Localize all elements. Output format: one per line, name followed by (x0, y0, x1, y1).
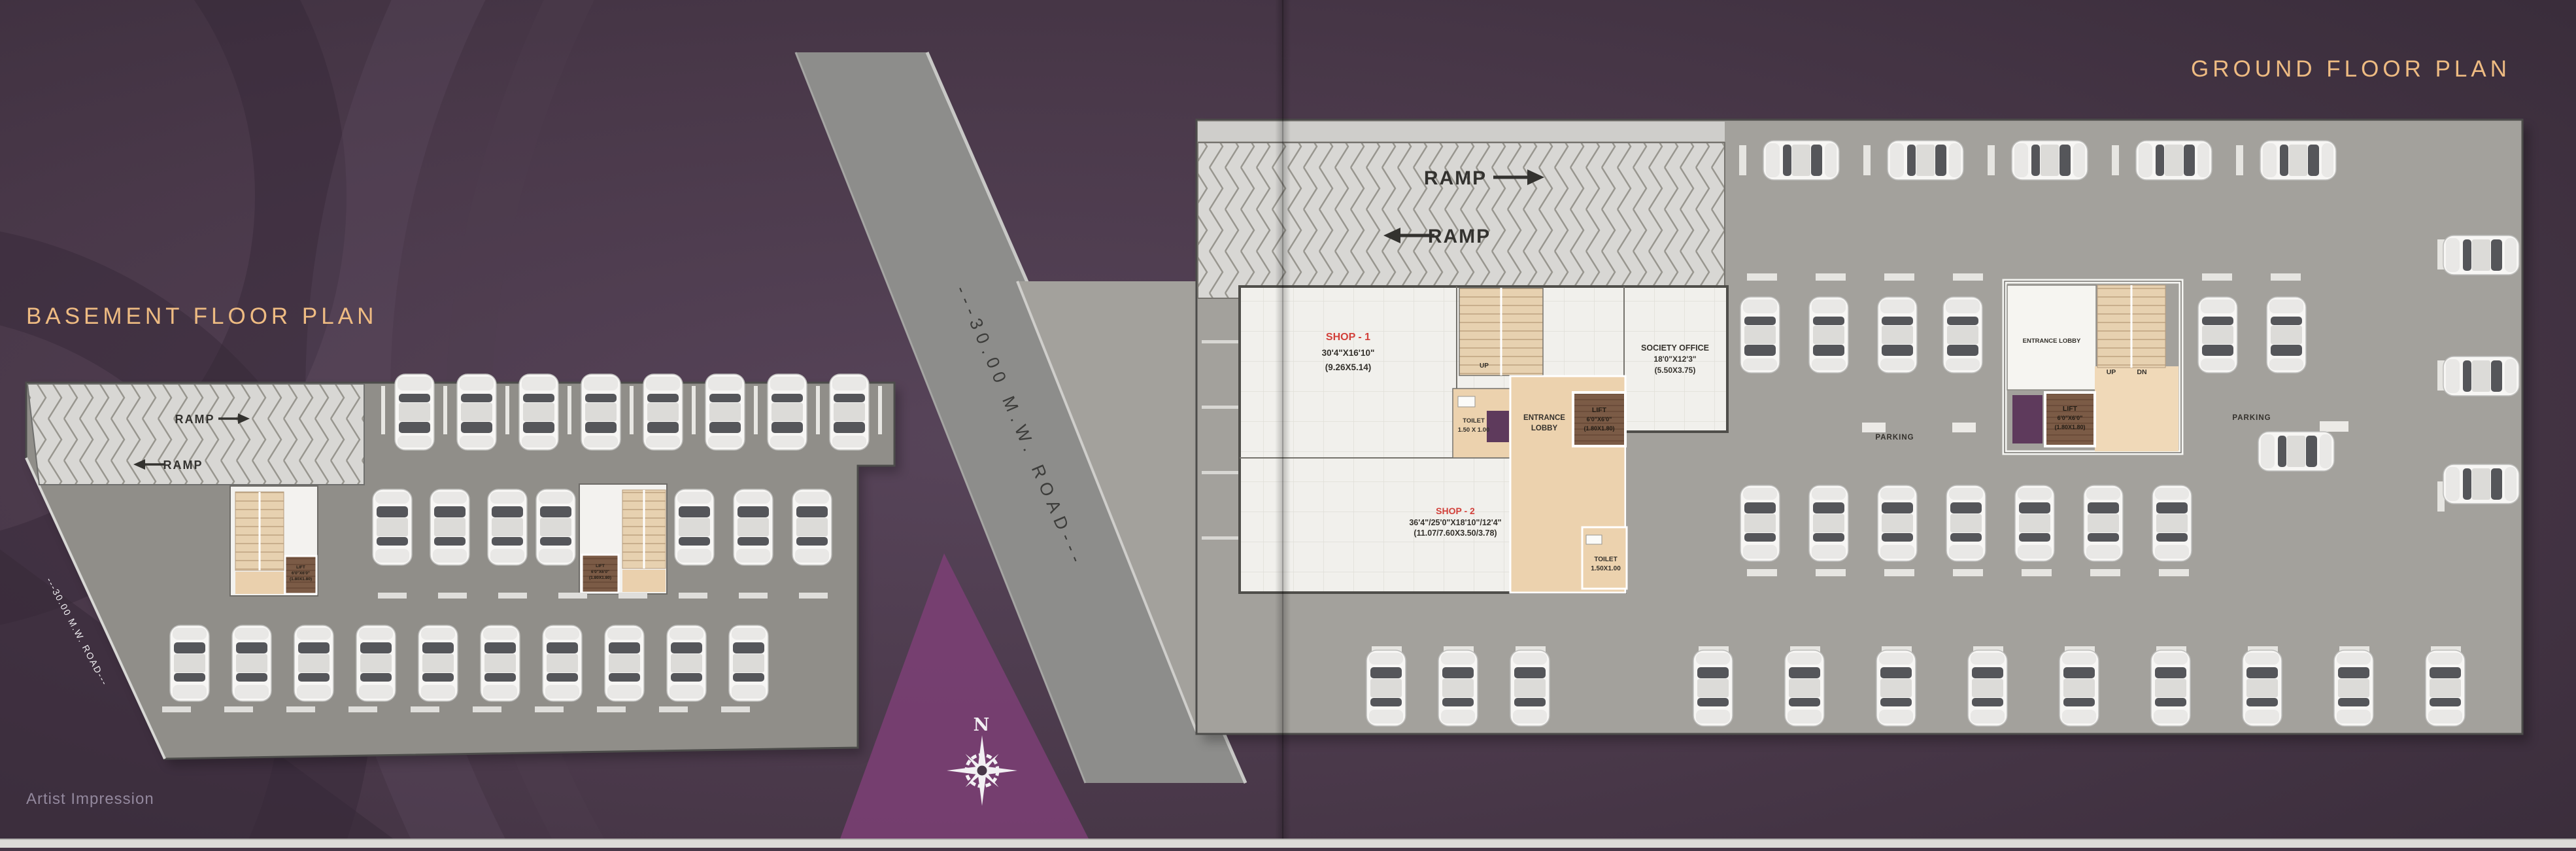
wheel-stop (1816, 273, 1846, 281)
ramp-label: RAMP (1428, 226, 1491, 247)
car-topview (170, 625, 209, 701)
bay-line (1202, 406, 1238, 409)
car-topview (2426, 650, 2465, 726)
wheel-stop (498, 593, 527, 599)
wheel-stop (1816, 569, 1846, 576)
lift-label: LIFT (1592, 406, 1607, 414)
wheel-stop (739, 593, 768, 599)
sink (1458, 396, 1475, 407)
car-topview (519, 374, 558, 450)
bay-divider (878, 386, 882, 434)
basement-plan-title: BASEMENT FLOOR PLAN (26, 304, 377, 330)
bay-line (1202, 340, 1238, 343)
shop1-name: SHOP - 1 (1326, 332, 1370, 343)
car-topview (1510, 650, 1550, 726)
car-topview (1785, 650, 1824, 726)
car-topview (2443, 235, 2519, 275)
up-label: UP (2107, 368, 2116, 376)
bay-line (1202, 536, 1238, 540)
dn-label: DN (2137, 368, 2146, 376)
parking-label: PARKING (2232, 414, 2271, 422)
car-topview (488, 489, 527, 565)
lift-label: LIFT (296, 565, 305, 570)
car-topview (581, 374, 620, 450)
car-topview (643, 374, 683, 450)
shop2-dims-ft: 36'4"/25'0"X18'10"/12'4" (1409, 518, 1501, 527)
door-block (1487, 411, 1509, 442)
car-topview (1888, 141, 1963, 180)
wheel-stop (348, 706, 377, 712)
wheel-stop (2236, 145, 2243, 175)
car-topview (1946, 485, 1986, 561)
wheel-stop (1739, 145, 1746, 175)
wheel-stop (2202, 273, 2232, 281)
entrance-lobby-label: ENTRANCE (1523, 414, 1565, 422)
lift-dims-m: (1.80X1.80) (2054, 424, 2085, 430)
basement-stair-block: LIFT 6'0"X6'0" (1.80X1.80) (230, 486, 318, 596)
toilet-label: TOILET (1463, 417, 1485, 425)
car-topview (1809, 297, 1848, 373)
car-topview (2243, 650, 2282, 726)
ramp-label: RAMP (163, 459, 203, 472)
car-topview (2258, 432, 2334, 471)
ramp-label: RAMP (175, 413, 215, 426)
bay-divider (816, 386, 820, 434)
wheel-stop (619, 593, 647, 599)
car-topview (2443, 464, 2519, 504)
shop1-dims-ft: 30'4"X16'10" (1322, 348, 1375, 358)
car-topview (481, 625, 520, 701)
wheel-stop (679, 593, 707, 599)
wheel-stop (1884, 273, 1914, 281)
wheel-stop (411, 706, 439, 712)
wheel-stop (1953, 273, 1983, 281)
wheel-stop (597, 706, 626, 712)
wheel-stop (535, 706, 564, 712)
lift-label: LIFT (596, 564, 605, 568)
wheel-stop (1747, 273, 1777, 281)
car-topview (2334, 650, 2373, 726)
wheel-stop (1884, 569, 1914, 576)
right-entrance-core: ENTRANCE LOBBY UP DN LIFT 6'0"X6'0" (1.8… (2005, 281, 2181, 453)
car-topview (2260, 141, 2336, 180)
toilet-dims: 1.50 X 1.00 (1458, 426, 1490, 434)
wheel-stop (1953, 569, 1983, 576)
wheel-stop (659, 706, 688, 712)
wheel-stop (1988, 145, 1995, 175)
wheel-stop (2022, 569, 2052, 576)
bay-divider (505, 386, 509, 434)
column-pad (1952, 423, 1976, 432)
car-topview (294, 625, 333, 701)
car-topview (734, 489, 773, 565)
car-topview (2151, 650, 2190, 726)
wheel-stop (2159, 569, 2189, 576)
car-topview (2015, 485, 2054, 561)
wheel-stop (162, 706, 191, 712)
car-topview (1740, 297, 1780, 373)
car-topview (768, 374, 807, 450)
bay-divider (568, 386, 571, 434)
bay-line (1202, 471, 1238, 474)
car-topview (536, 489, 575, 565)
car-topview (605, 625, 644, 701)
car-topview (792, 489, 832, 565)
car-topview (543, 625, 582, 701)
column-pad (2320, 421, 2348, 432)
basement-stair-block: LIFT 6'0"X6'0" (1.80X1.80) (579, 484, 667, 594)
wheel-stop (438, 593, 467, 599)
car-topview (667, 625, 706, 701)
brochure-spread: ---30.00 M.W. ROAD--- RAMP RAMP LIFT 6'0… (0, 0, 2576, 848)
bay-divider (692, 386, 696, 434)
shop2-name: SHOP - 2 (1436, 506, 1475, 516)
bottom-strip-edge (0, 839, 2576, 840)
car-topview (232, 625, 271, 701)
up-label: UP (1480, 362, 1489, 370)
lift-dims-m: (1.80X1.80) (290, 577, 312, 582)
lift-dims-ft: 6'0"X6'0" (292, 571, 310, 576)
car-topview (2136, 141, 2212, 180)
compass-north-label: N (974, 715, 990, 735)
fold-line (1282, 0, 1283, 848)
entrance-lobby-label: LOBBY (1531, 425, 1558, 432)
lift-dims-ft: 6'0"X6'0" (2058, 415, 2083, 421)
car-topview (2443, 356, 2519, 396)
car-topview (675, 489, 714, 565)
entrance-lobby-label: ENTRANCE LOBBY (2023, 338, 2081, 345)
wheel-stop (2090, 569, 2120, 576)
society-office-name: SOCIETY OFFICE (1641, 343, 1709, 353)
basement-floor-plan: RAMP RAMP LIFT 6'0"X6'0" (1.80X1.80) (26, 374, 894, 759)
car-topview (430, 489, 469, 565)
wheel-stop (2112, 145, 2119, 175)
floorplan-scene: ---30.00 M.W. ROAD--- RAMP RAMP LIFT 6'0… (0, 0, 2576, 848)
wheel-stop (2271, 273, 2301, 281)
car-topview (1876, 650, 1916, 726)
car-topview (1943, 297, 1982, 373)
car-topview (2084, 485, 2123, 561)
car-topview (2059, 650, 2099, 726)
bay-divider (443, 386, 447, 434)
bay-divider (381, 386, 385, 434)
car-topview (1878, 297, 1917, 373)
car-topview (1809, 485, 1848, 561)
car-topview (2198, 297, 2237, 373)
column-pad (1862, 423, 1886, 432)
car-topview (1740, 485, 1780, 561)
wheel-stop (799, 593, 828, 599)
car-topview (418, 625, 458, 701)
car-topview (373, 489, 412, 565)
car-topview (356, 625, 396, 701)
wheel-stop (473, 706, 501, 712)
wheel-stop (378, 593, 407, 599)
artist-impression-note: Artist Impression (26, 790, 154, 808)
car-topview (1878, 485, 1917, 561)
bay-divider (754, 386, 758, 434)
toilet-dims: 1.50X1.00 (1591, 565, 1621, 572)
lift-dims-ft: 6'0"X6'0" (1587, 416, 1612, 423)
car-topview (457, 374, 496, 450)
landing (2095, 366, 2178, 451)
society-office-dims-m: (5.50X3.75) (1655, 366, 1696, 375)
society-office-dims-ft: 18'0"X12'3" (1653, 355, 1696, 364)
ramp-label: RAMP (1424, 167, 1487, 189)
door-block (2012, 395, 2042, 443)
car-topview (1438, 650, 1478, 726)
wheel-stop (1863, 145, 1871, 175)
toilet-label: TOILET (1594, 556, 1617, 563)
shop2-dims-m: (11.07/7.60X3.50/3.78) (1414, 529, 1497, 538)
car-topview (705, 374, 745, 450)
car-topview (1366, 650, 1406, 726)
ground-floor-plan: RAMP RAMP SHOP - 1 30'4"X16'10" (9.26X5.… (1196, 120, 2522, 734)
wheel-stop (224, 706, 253, 712)
lift-label: LIFT (2063, 405, 2078, 413)
car-topview (729, 625, 768, 701)
shop1-dims-m: (9.26X5.14) (1325, 362, 1372, 372)
parking-label: PARKING (1875, 434, 1914, 442)
wheel-stop (721, 706, 750, 712)
ground-plan-title: GROUND FLOOR PLAN (2191, 56, 2511, 82)
car-topview (2012, 141, 2088, 180)
car-topview (2152, 485, 2192, 561)
wheel-stop (1747, 569, 1777, 576)
lift-dims-ft: 6'0"X6'0" (591, 570, 609, 574)
car-topview (1763, 141, 1839, 180)
car-topview (830, 374, 869, 450)
lift-dims-m: (1.80X1.80) (589, 576, 611, 580)
car-topview (1693, 650, 1733, 726)
lift-dims-m: (1.80X1.80) (1584, 425, 1614, 432)
wheel-stop (286, 706, 315, 712)
sink (1586, 535, 1602, 544)
car-topview (395, 374, 434, 450)
bottom-strip (0, 840, 2576, 848)
bay-divider (630, 386, 634, 434)
wheel-stop (558, 593, 587, 599)
car-topview (1968, 650, 2007, 726)
car-topview (2267, 297, 2306, 373)
